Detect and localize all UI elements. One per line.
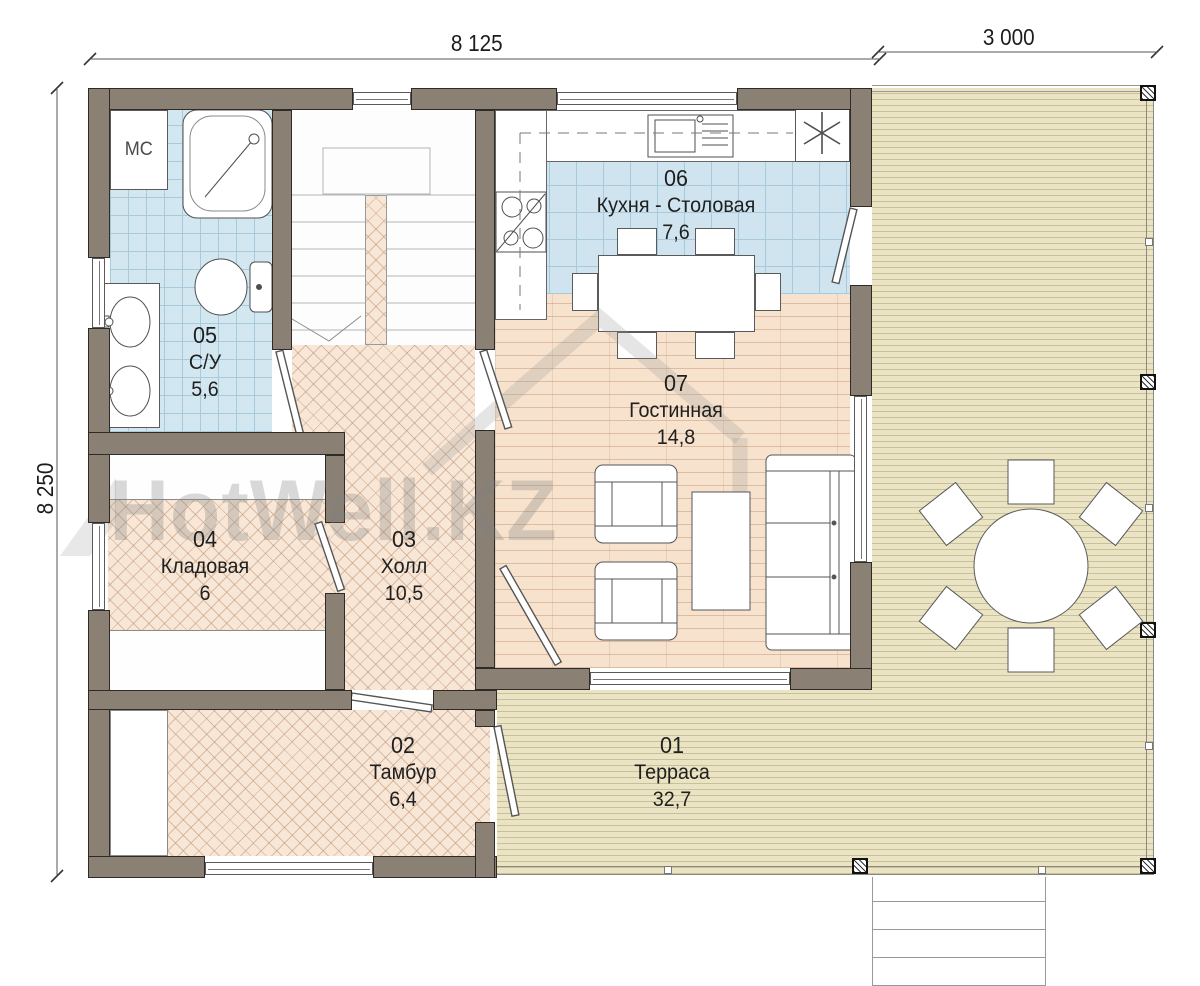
dimension-house-depth: 8 250 (32, 463, 59, 515)
wall (88, 690, 352, 710)
window (557, 92, 737, 105)
room-label-bathroom: 05 С/У 5,6 (149, 322, 262, 403)
armchair (595, 562, 677, 640)
floor-plan: МС (0, 0, 1200, 986)
staircase (287, 148, 475, 341)
fridge-icon (804, 112, 840, 154)
window (854, 396, 867, 562)
vestibule-terrace-door (494, 726, 519, 817)
coffee-table (692, 492, 750, 610)
room-label-hall: 03 Холл 10,5 (348, 526, 461, 607)
window (92, 523, 105, 610)
stairs-direction-arrow (287, 316, 361, 341)
stove-icon (496, 192, 546, 252)
window (353, 92, 411, 105)
wall (88, 88, 353, 110)
wall (475, 822, 495, 878)
window (92, 258, 105, 328)
shower-icon (183, 110, 272, 218)
wall (433, 690, 497, 710)
sofa (766, 455, 856, 650)
armchair (595, 465, 677, 543)
wall (325, 593, 345, 690)
wall (475, 668, 590, 690)
window (205, 862, 373, 875)
dimension-terrace-width: 3 000 (983, 24, 1035, 51)
kitchen-sink-icon (648, 115, 733, 157)
living-terrace-door (500, 566, 561, 666)
room-label-vestibule: 02 Тамбур 6,4 (347, 732, 460, 813)
terrace-table-set (919, 460, 1142, 672)
dimension-house-width: 8 125 (451, 30, 503, 57)
room-label-terrace: 01 Терраса 32,7 (616, 732, 729, 813)
wall (790, 668, 872, 690)
room-label-kitchen: 06 Кухня - Столовая 7,6 (582, 165, 770, 246)
wall (88, 88, 110, 258)
hall-vestibule-door (351, 693, 432, 712)
room-label-storage: 04 Кладовая 6 (149, 526, 262, 607)
bathroom-door (276, 350, 304, 435)
wall (272, 110, 292, 350)
kitchen-terrace-door (832, 208, 857, 283)
window (590, 672, 790, 685)
toilet-icon (195, 259, 272, 315)
wall (411, 88, 557, 110)
wall (88, 328, 110, 523)
wall (88, 610, 110, 878)
wall (850, 88, 872, 207)
room-label-living: 07 Гостинная 14,8 (582, 370, 770, 451)
wall (850, 285, 872, 396)
wall (475, 710, 495, 727)
wall (88, 856, 205, 878)
wall (88, 432, 345, 455)
wall (475, 110, 495, 350)
